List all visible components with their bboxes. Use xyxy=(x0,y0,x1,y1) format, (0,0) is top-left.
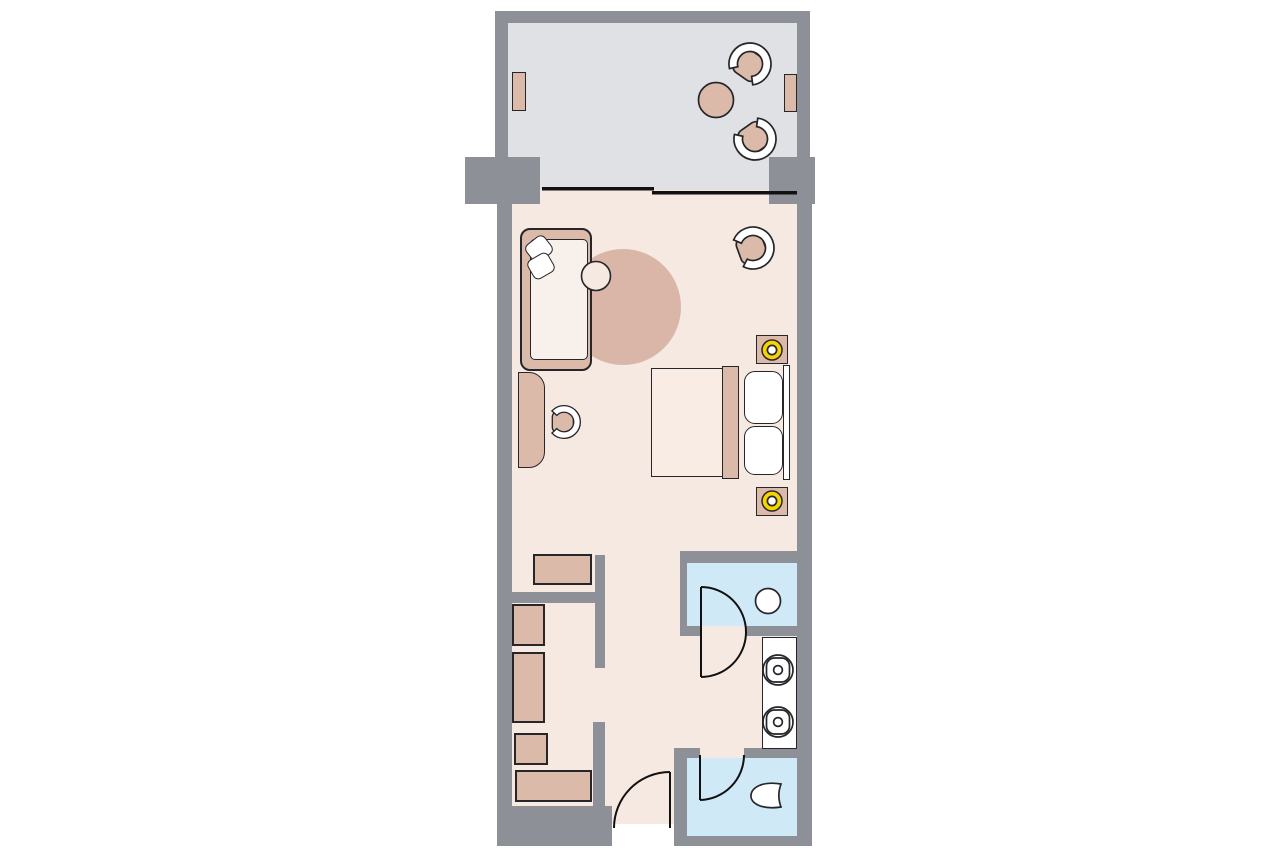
floor-plan-canvas xyxy=(0,0,1280,854)
wall-bottom-left-block xyxy=(497,806,612,846)
wall-left xyxy=(497,204,512,828)
wall-entry-right-strip xyxy=(674,748,687,846)
planter-right xyxy=(784,74,797,112)
bed-pillow-2 xyxy=(744,426,783,475)
luggage-shelf xyxy=(533,554,592,585)
wardrobe-2 xyxy=(512,652,545,723)
wall-top xyxy=(495,11,810,23)
planter-left xyxy=(512,72,526,111)
pillar-right xyxy=(769,157,815,204)
wall-stub-upper xyxy=(595,555,605,668)
wall-niche xyxy=(512,592,605,603)
wall-stub-lower xyxy=(593,722,605,810)
wall-right xyxy=(797,204,812,846)
shower-room-floor xyxy=(687,563,797,626)
bed-duvet xyxy=(651,368,723,477)
wall-wc-top-right xyxy=(744,748,797,758)
bed-headboard xyxy=(783,365,790,480)
entry-threshold xyxy=(612,824,674,846)
nightstand-top xyxy=(756,335,788,364)
nightstand-bottom xyxy=(756,487,788,516)
wall-wc-top-left xyxy=(687,748,700,758)
wc-room-floor xyxy=(687,758,797,836)
balcony-floor xyxy=(508,23,797,190)
pillar-left xyxy=(465,157,540,204)
wall-shower-bottom-left xyxy=(680,626,701,636)
wall-shower-top xyxy=(680,551,797,563)
wardrobe-1 xyxy=(512,604,545,646)
wall-balcony-right xyxy=(797,23,810,157)
wall-bottom-under-wc xyxy=(687,836,797,846)
wall-balcony-left xyxy=(495,23,508,157)
bench xyxy=(515,770,592,802)
desk xyxy=(518,372,545,468)
bed-duvet-fold xyxy=(722,366,739,479)
bed-pillow-1 xyxy=(744,371,783,424)
vanity-counter xyxy=(762,637,797,749)
wardrobe-3 xyxy=(514,733,548,765)
wall-shower-bottom-right xyxy=(745,626,797,636)
